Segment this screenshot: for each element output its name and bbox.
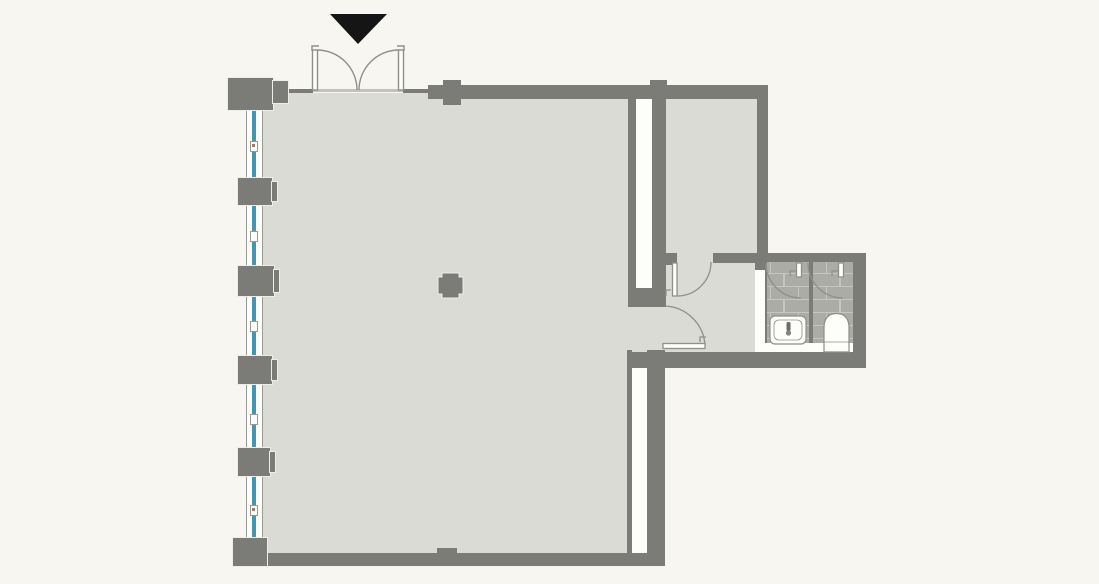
entrance-arrow-icon — [330, 14, 387, 44]
corner-pillar-top-left-step — [273, 81, 288, 103]
wc-tiled-floor — [767, 262, 853, 343]
wc-left-door-leaf — [797, 263, 802, 277]
side-room-right-wall — [757, 85, 768, 263]
side-room-door-stub — [666, 253, 677, 265]
corner-pillar-top-left — [228, 78, 273, 110]
main-hall-floor-top-sliver — [288, 93, 428, 103]
south-wall-vestibule-bath — [627, 352, 866, 368]
entrance-door-leaf-left — [313, 50, 318, 90]
top-wall-left-thin — [288, 89, 313, 93]
wc-right-door-swing-arc — [808, 263, 843, 298]
facade-pillar-step — [274, 270, 279, 292]
basin-body — [770, 316, 806, 344]
wc-left-door-handle-mark — [790, 271, 796, 276]
side-room-left-wall — [652, 99, 666, 307]
facade-pillar-step — [270, 452, 275, 472]
wc-left-stall-door — [766, 263, 802, 298]
top-pilaster-bump-above — [443, 80, 461, 85]
main-right-wall-lower-thin — [627, 350, 632, 553]
wc-left-door-swing-arc — [766, 263, 801, 298]
corner-pillar-bottom-left — [233, 538, 267, 566]
entrance-door-swing-arc-right — [359, 50, 399, 90]
bath-right-wall — [853, 253, 866, 368]
bath-stall-left-thin-wall — [765, 263, 767, 343]
main-to-vestibule-doorway-floor — [630, 305, 665, 352]
floor-plan — [0, 0, 1099, 584]
top-wall-main — [428, 85, 768, 99]
window-mullion-tick — [250, 321, 258, 332]
side-room-bottom-and-bath-top-wall — [713, 253, 866, 263]
facade-pillar — [238, 178, 272, 205]
faucet-base — [786, 330, 791, 335]
wall-cavity-cap — [628, 288, 666, 307]
entrance-threshold — [313, 89, 403, 92]
wc-right-stall-door — [808, 263, 844, 298]
facade-pillar-step — [272, 182, 277, 201]
wall-cavity-upper — [636, 99, 652, 289]
main-hall-floor — [262, 97, 632, 555]
top-wall-right-thin — [403, 89, 428, 93]
entrance-door-leaf-right — [399, 50, 404, 90]
facade-pillar — [238, 356, 272, 384]
wall-shaft-lower — [632, 362, 647, 553]
faucet-icon — [787, 322, 791, 331]
main-right-wall-lower-thick — [647, 350, 665, 566]
wc-right-door-leaf — [839, 263, 844, 277]
entrance-door-hinge-marks — [312, 46, 404, 51]
window-mullion-tick — [250, 231, 258, 242]
wash-basin — [770, 316, 806, 344]
entrance-double-door — [312, 46, 404, 90]
bottom-wall-bump — [437, 548, 457, 553]
wc-right-door-handle-mark — [832, 271, 838, 276]
top-wall-stub-above — [650, 80, 667, 85]
mullion-accent-dot — [252, 144, 255, 147]
basin-bowl — [774, 320, 802, 340]
bottom-wall — [232, 553, 665, 566]
vestibule-floor — [663, 262, 755, 352]
facade-pillar — [238, 266, 274, 296]
entrance-door-swing-arc-left — [317, 50, 357, 90]
wc-stall-divider-wall — [809, 262, 813, 343]
bath-bottom-strip — [767, 343, 853, 352]
window-mullion-tick — [250, 505, 258, 516]
mullion-accent-dot — [252, 508, 255, 511]
top-pilaster-bump-below — [443, 99, 461, 105]
facade-pillar — [238, 448, 270, 476]
side-room-floor — [666, 97, 757, 262]
facade-pillar-step — [272, 360, 277, 380]
window-mullion-tick — [250, 141, 258, 152]
window-mullion-tick — [250, 414, 258, 425]
main-right-wall-upper — [628, 99, 636, 290]
